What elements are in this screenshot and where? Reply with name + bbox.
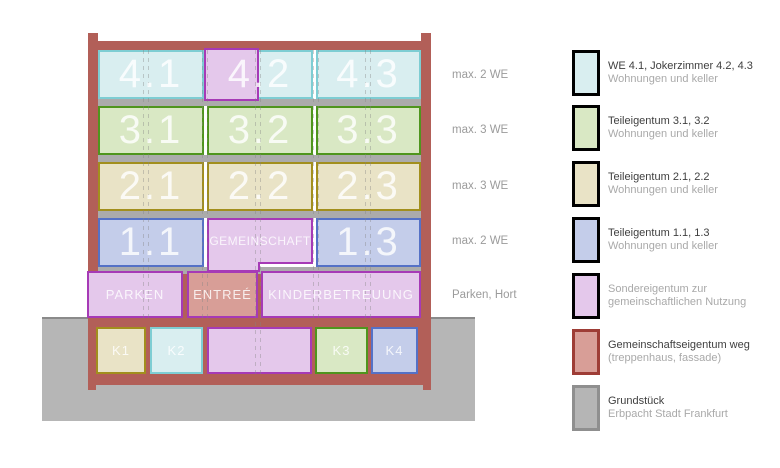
room-label-4-1: 4.1 [98, 50, 204, 99]
legend-label: Gemeinschaftseigentum weg [608, 339, 750, 353]
room-label-3-1: 3.1 [98, 106, 204, 155]
legend-swatch-gray [572, 385, 600, 431]
building-wall-right [421, 33, 431, 385]
room-label-k4: K4 [371, 327, 418, 374]
legend-sublabel: gemeinschaftlichen Nutzung [608, 296, 746, 310]
room-label-2-2: 2.2 [207, 162, 313, 211]
legend-sublabel: Erbpacht Stadt Frankfurt [608, 408, 728, 422]
legend-sublabel: (treppenhaus, fassade) [608, 352, 750, 366]
legend-sublabel: Wohnungen und keller [608, 240, 718, 254]
room-label-k2: K2 [150, 327, 203, 374]
legend-swatch-rose [572, 329, 600, 375]
building-footing-right [423, 385, 431, 390]
legend-sublabel: Wohnungen und keller [608, 73, 753, 87]
room-label-1-3: 1.3 [316, 218, 421, 267]
room-label-gemeinschaft: GEMEINSCHAFT [207, 218, 313, 264]
room-label-kinderbetreuung: KINDERBETREUUNG [261, 271, 421, 318]
legend-label: Sondereigentum zur [608, 283, 746, 297]
floor-annotation-3: max. 3 WE [452, 124, 582, 138]
legend-item-gemeinschaftseigentum: Gemeinschaftseigentum weg (treppenhaus, … [572, 329, 780, 375]
legend-item-sondereigentum: Sondereigentum zur gemeinschaftlichen Nu… [572, 273, 780, 319]
legend-label: Teileigentum 3.1, 3.2 [608, 115, 718, 129]
room-label-k1: K1 [96, 327, 146, 374]
building-roof-slab [88, 41, 431, 50]
room-label-4-3: 4.3 [316, 50, 421, 99]
room-label-2-3: 2.3 [316, 162, 421, 211]
legend-label: Grundstück [608, 395, 728, 409]
legend-sublabel: Wohnungen und keller [608, 184, 718, 198]
building-footing-left [88, 385, 96, 390]
legend-item-we-4: WE 4.1, Jokerzimmer 4.2, 4.3 Wohnungen u… [572, 50, 780, 96]
room-label-4-2: 4.2 [207, 50, 313, 99]
legend-swatch-pink [572, 273, 600, 319]
legend-swatch-cyan [572, 50, 600, 96]
floor-annotation-ground: Parken, Hort [452, 289, 582, 303]
room-label-2-1: 2.1 [98, 162, 204, 211]
room-label-3-3: 3.3 [316, 106, 421, 155]
legend-item-teileigentum-3: Teileigentum 3.1, 3.2 Wohnungen und kell… [572, 105, 780, 151]
room-label-parken: PARKEN [87, 271, 183, 318]
room-label-entree: ENTREÉ [187, 271, 258, 318]
legend-item-teileigentum-2: Teileigentum 2.1, 2.2 Wohnungen und kell… [572, 161, 780, 207]
legend-label: WE 4.1, Jokerzimmer 4.2, 4.3 [608, 60, 753, 74]
room-label-1-1: 1.1 [98, 218, 204, 267]
legend-swatch-blue [572, 217, 600, 263]
room-label-3-2: 3.2 [207, 106, 313, 155]
legend-label: Teileigentum 2.1, 2.2 [608, 171, 718, 185]
floor-annotation-2: max. 3 WE [452, 180, 582, 194]
legend-swatch-green [572, 105, 600, 151]
floor-annotation-1: max. 2 WE [452, 235, 582, 249]
legend-sublabel: Wohnungen und keller [608, 128, 718, 142]
legend-label: Teileigentum 1.1, 1.3 [608, 227, 718, 241]
legend-item-teileigentum-1: Teileigentum 1.1, 1.3 Wohnungen und kell… [572, 217, 780, 263]
legend-item-grundstueck: Grundstück Erbpacht Stadt Frankfurt [572, 385, 780, 431]
floor-annotation-4: max. 2 WE [452, 69, 582, 83]
building-section-diagram: 4.1 4.2 4.3 3.1 3.2 3.3 2.1 2.2 2.3 1.1 … [0, 0, 780, 468]
legend-swatch-tan [572, 161, 600, 207]
room-label-k3: K3 [315, 327, 368, 374]
